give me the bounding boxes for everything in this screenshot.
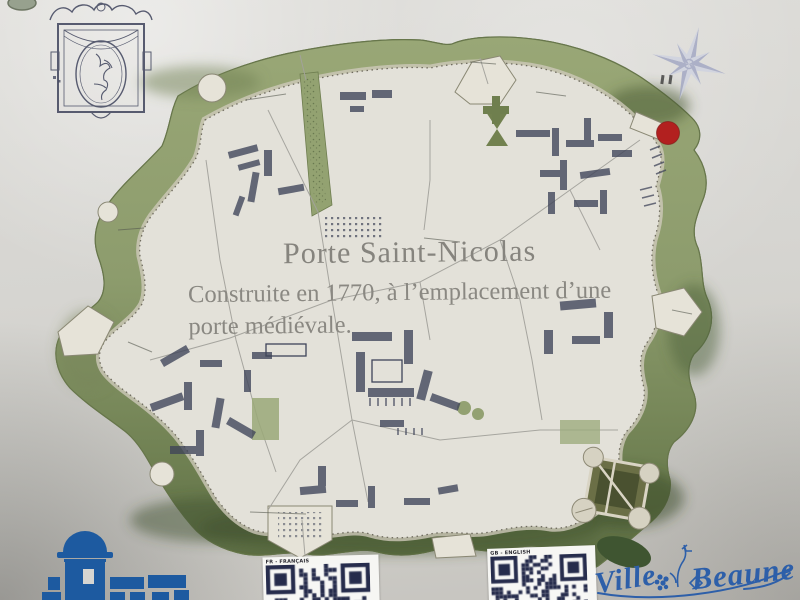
qr-pattern-francais [266,563,373,600]
saint-nicolas-engraving [44,0,160,124]
location-marker [657,122,680,145]
mounting-screw [8,0,36,10]
information-panel: Porte Saint-Nicolas Construite en 1770, … [0,0,800,600]
qr-code-english: GB - ENGLISH [487,545,599,600]
panel-scuff-marks [660,75,672,84]
qr-pattern-english [490,553,589,600]
tower-pictogram-icon [40,526,192,600]
qr-code-francais: FR - FRANÇAIS [262,555,381,600]
subtitle-line-2: porte médiévale. [188,312,352,341]
page-title: Porte Saint-Nicolas [283,235,536,271]
ville-de-beaune-logo: Ville Beaune [594,543,798,600]
subtitle-line-1: Construite en 1770, à l’emplacement d’un… [188,277,612,308]
bastion-dot-grid [278,512,322,540]
